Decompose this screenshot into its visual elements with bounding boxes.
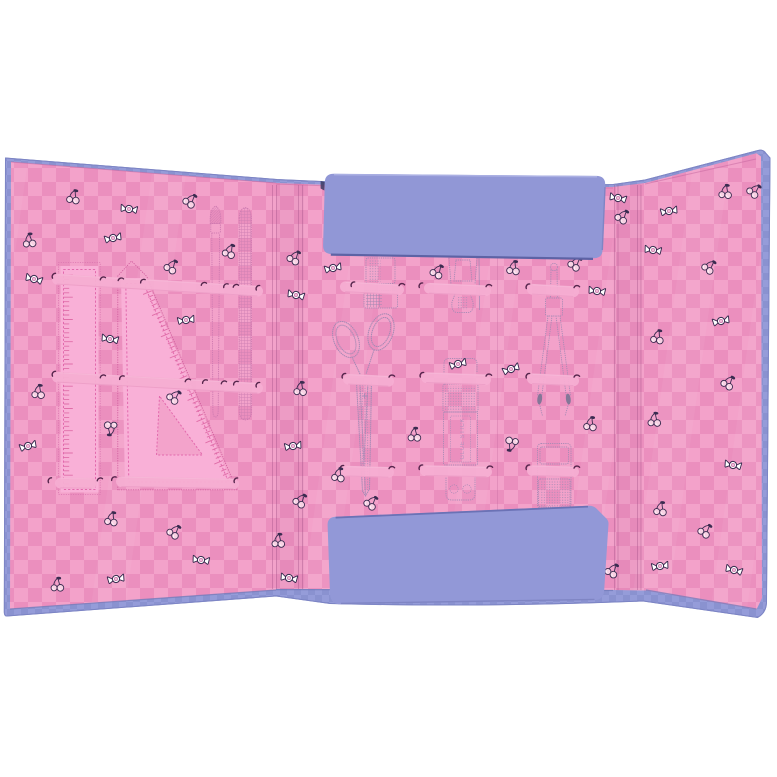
svg-text:GLUE STICK: GLUE STICK [460,418,466,460]
